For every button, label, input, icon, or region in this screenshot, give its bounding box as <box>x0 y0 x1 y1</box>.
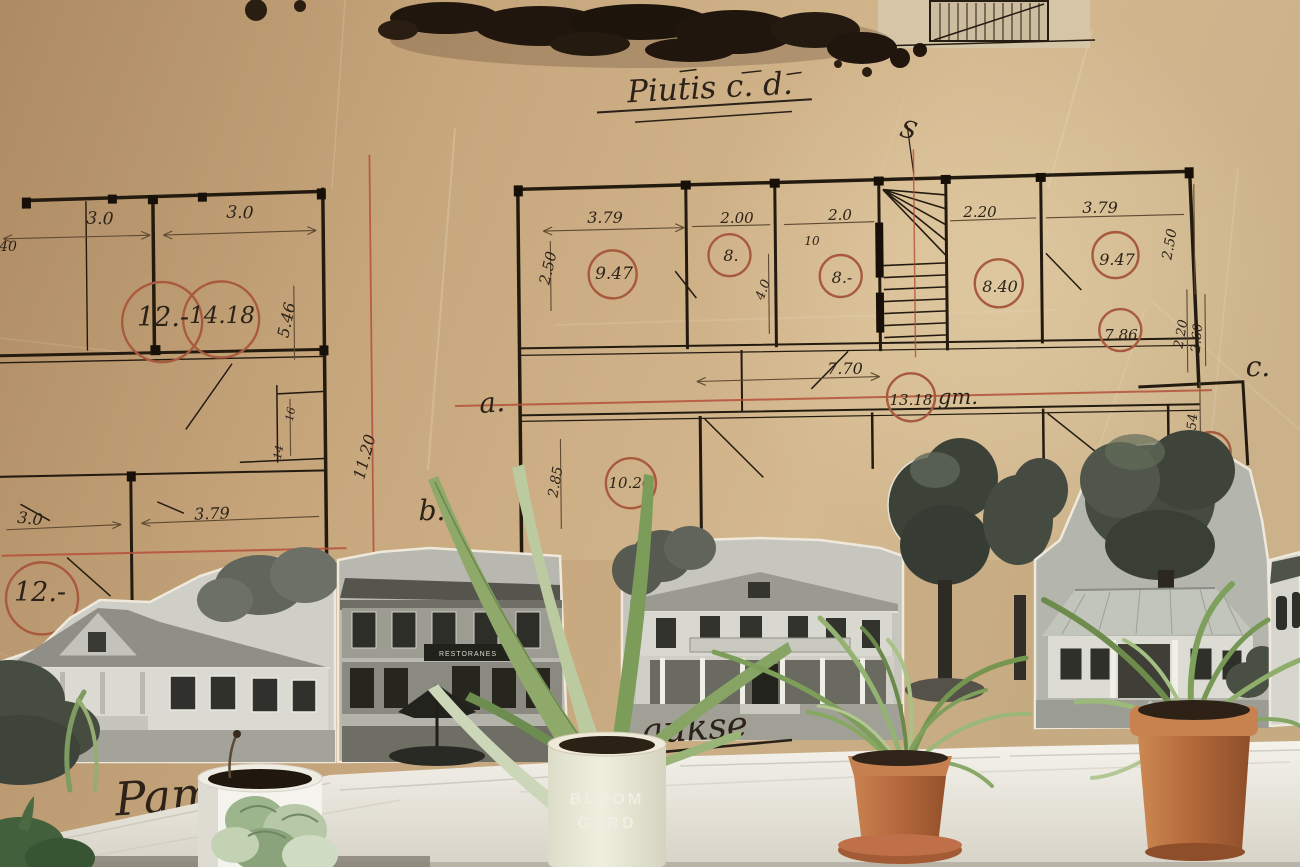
room-label-8-first: 8. <box>723 246 738 265</box>
pot-label-line2: GARD <box>577 815 636 832</box>
pot-label-line1: BLOOM <box>570 791 645 808</box>
room-label-8-second: 8.- <box>832 268 853 287</box>
room-label-1318: 13.18 <box>890 391 933 409</box>
dim-label-top-w2: 3.0 <box>226 203 254 224</box>
dim-label-top-w1: 3.0 <box>86 209 114 230</box>
room-label-12-top: 12.- <box>137 302 189 333</box>
section-letter-c: c. <box>1246 350 1271 383</box>
top-mini-plan <box>878 0 1095 48</box>
dim-label-bottom-w2: 3.79 <box>194 503 230 523</box>
exhibit-photo: Piutis c. d. S 12.- 14.18 12.- 3.0 3.0 4… <box>0 0 1300 867</box>
room-label-840: 8.40 <box>982 277 1018 296</box>
dim-label-14: 14 <box>271 444 286 460</box>
dim-label-20: 2.0 <box>827 206 852 224</box>
section-letter-a: a. <box>478 385 506 420</box>
room-label-786: 7.86 <box>1104 326 1138 344</box>
dim-label-379-right: 3.79 <box>1082 198 1118 217</box>
dim-label-379-left: 3.79 <box>587 208 623 227</box>
room-label-12-bottom: 12.- <box>14 577 66 608</box>
room-label-947-right: 9.47 <box>1099 250 1135 269</box>
photo-house-5 <box>1270 552 1300 726</box>
dim-label-770: 7.70 <box>827 359 863 378</box>
dim-label-bottom-w1: 3.0 <box>16 508 43 530</box>
room-label-1318-suffix: gm. <box>938 385 978 409</box>
dim-label-220: 2.20 <box>962 203 997 221</box>
dim-label-small-10: 10 <box>804 234 820 248</box>
photo-house-3 <box>612 526 903 740</box>
dim-label-16: 16 <box>283 406 298 422</box>
dim-label-200: 2.00 <box>719 209 754 227</box>
dim-label-260: 2.60 <box>1189 323 1207 354</box>
dim-label-edge-40: 40 <box>0 239 17 255</box>
restaurant-sign-text: RESTORANES <box>439 651 497 658</box>
room-label-1418: 14.18 <box>189 303 255 329</box>
room-label-947-left: 9.47 <box>595 264 633 284</box>
